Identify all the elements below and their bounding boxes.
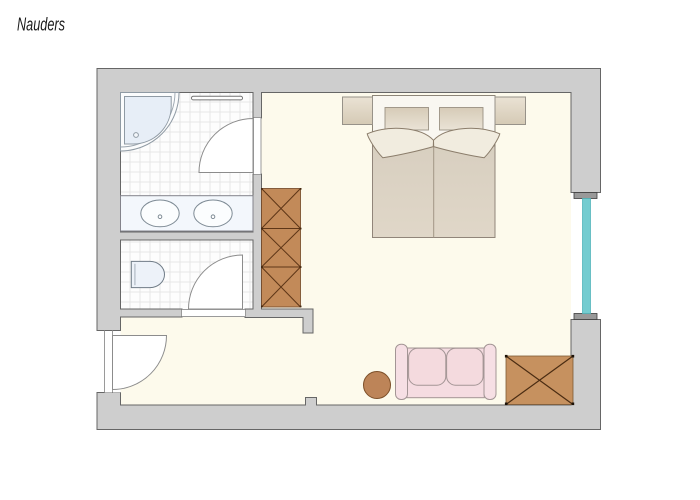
svg-text:Nauders: Nauders (17, 14, 65, 35)
